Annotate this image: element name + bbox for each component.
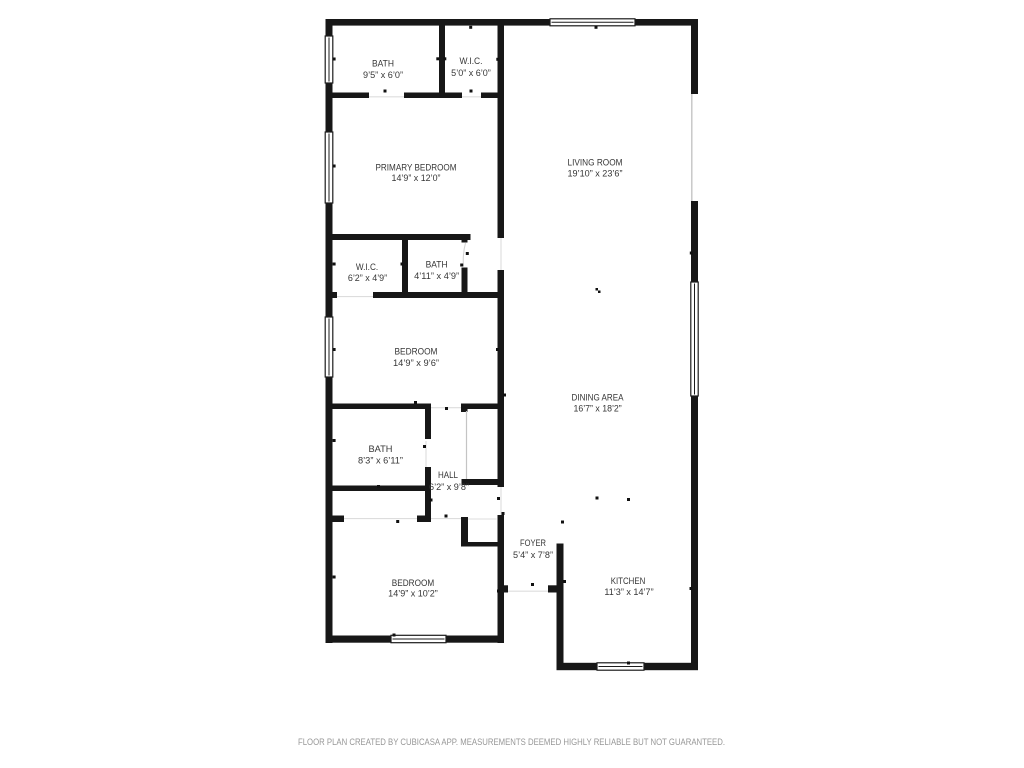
svg-text:DINING AREA: DINING AREA [572, 392, 624, 402]
svg-text:11’3” x 14’7”: 11’3” x 14’7” [604, 587, 653, 597]
svg-text:5’4” x 7’8”: 5’4” x 7’8” [513, 550, 553, 560]
svg-text:BATH: BATH [426, 259, 448, 269]
svg-text:PRIMARY BEDROOM: PRIMARY BEDROOM [376, 162, 457, 172]
svg-text:6’2” x 9’8”: 6’2” x 9’8” [429, 482, 469, 492]
svg-text:BEDROOM: BEDROOM [392, 578, 434, 588]
svg-text:4’11” x 4’9”: 4’11” x 4’9” [414, 271, 459, 281]
svg-text:14’9” x 12’0”: 14’9” x 12’0” [392, 173, 441, 183]
svg-text:14’9” x 9’6”: 14’9” x 9’6” [393, 358, 439, 368]
svg-text:5’0” x 6’0”: 5’0” x 6’0” [451, 68, 491, 78]
svg-text:W.I.C.: W.I.C. [460, 56, 483, 66]
svg-text:19’10” x 23’6”: 19’10” x 23’6” [568, 168, 623, 178]
svg-text:6’2” x 4’9”: 6’2” x 4’9” [348, 273, 387, 283]
svg-text:W.I.C.: W.I.C. [356, 262, 378, 272]
svg-text:14’9” x 10’2”: 14’9” x 10’2” [388, 588, 438, 598]
svg-text:BATH: BATH [369, 444, 393, 454]
svg-text:16’7” x 18’2”: 16’7” x 18’2” [573, 403, 621, 413]
svg-text:KITCHEN: KITCHEN [611, 576, 646, 586]
svg-text:BATH: BATH [372, 59, 394, 69]
svg-text:BEDROOM: BEDROOM [395, 346, 438, 356]
svg-text:9’5” x 6’0”: 9’5” x 6’0” [363, 70, 403, 80]
svg-text:HALL: HALL [438, 470, 458, 480]
svg-text:FLOOR PLAN CREATED BY CUBICASA: FLOOR PLAN CREATED BY CUBICASA APP. MEAS… [298, 737, 725, 747]
svg-text:8’3” x 6’11”: 8’3” x 6’11” [358, 455, 403, 465]
svg-text:LIVING ROOM: LIVING ROOM [568, 158, 623, 168]
svg-text:FOYER: FOYER [520, 538, 546, 548]
